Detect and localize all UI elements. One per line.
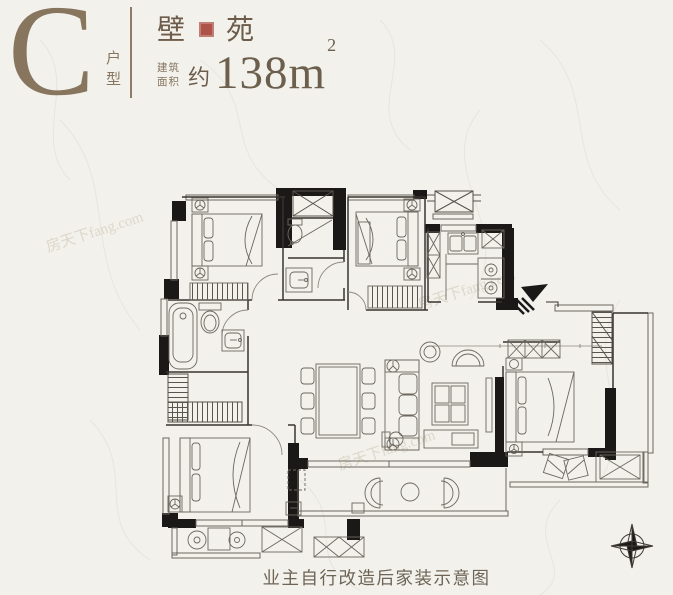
dryer	[229, 532, 245, 548]
south-balcony	[288, 470, 459, 557]
bed	[356, 212, 418, 266]
bed	[192, 214, 262, 266]
shoe-cabinet	[592, 312, 612, 364]
svg-text:房天下fang.com: 房天下fang.com	[44, 208, 146, 256]
laundry-balcony	[188, 527, 302, 552]
watermark: 房天下fang.com 房天下fang.com 房天下fang.com	[44, 208, 518, 474]
side-table	[420, 342, 440, 362]
washing-machine	[188, 531, 206, 549]
footer-caption: 业主自行改造后家装示意图	[80, 565, 673, 590]
lounge-chair	[564, 456, 588, 480]
toilet	[199, 303, 221, 310]
bed	[180, 438, 250, 512]
bedroom3	[168, 438, 301, 515]
closet	[168, 374, 242, 422]
desk	[358, 222, 370, 264]
counter	[208, 528, 230, 550]
compass-icon	[611, 524, 653, 568]
floorplan-page: C 户型 壁 苑 建筑 面积 约 138m2	[0, 0, 673, 595]
wardrobe	[368, 286, 422, 308]
dining-table	[316, 364, 360, 438]
shower-screen	[288, 220, 332, 246]
bathroom2	[169, 303, 244, 369]
foyer	[592, 312, 612, 364]
balcony-table	[401, 483, 419, 501]
floorplan-drawing: 房天下fang.com 房天下fang.com 房天下fang.com	[0, 0, 673, 595]
armchair	[452, 350, 484, 366]
bedroom1	[190, 198, 262, 300]
wardrobe	[190, 283, 248, 300]
bathroom1	[286, 219, 332, 292]
coffee-table	[432, 383, 468, 425]
tv-panel	[486, 378, 492, 432]
windows	[161, 195, 653, 558]
master-bedroom	[506, 340, 574, 456]
